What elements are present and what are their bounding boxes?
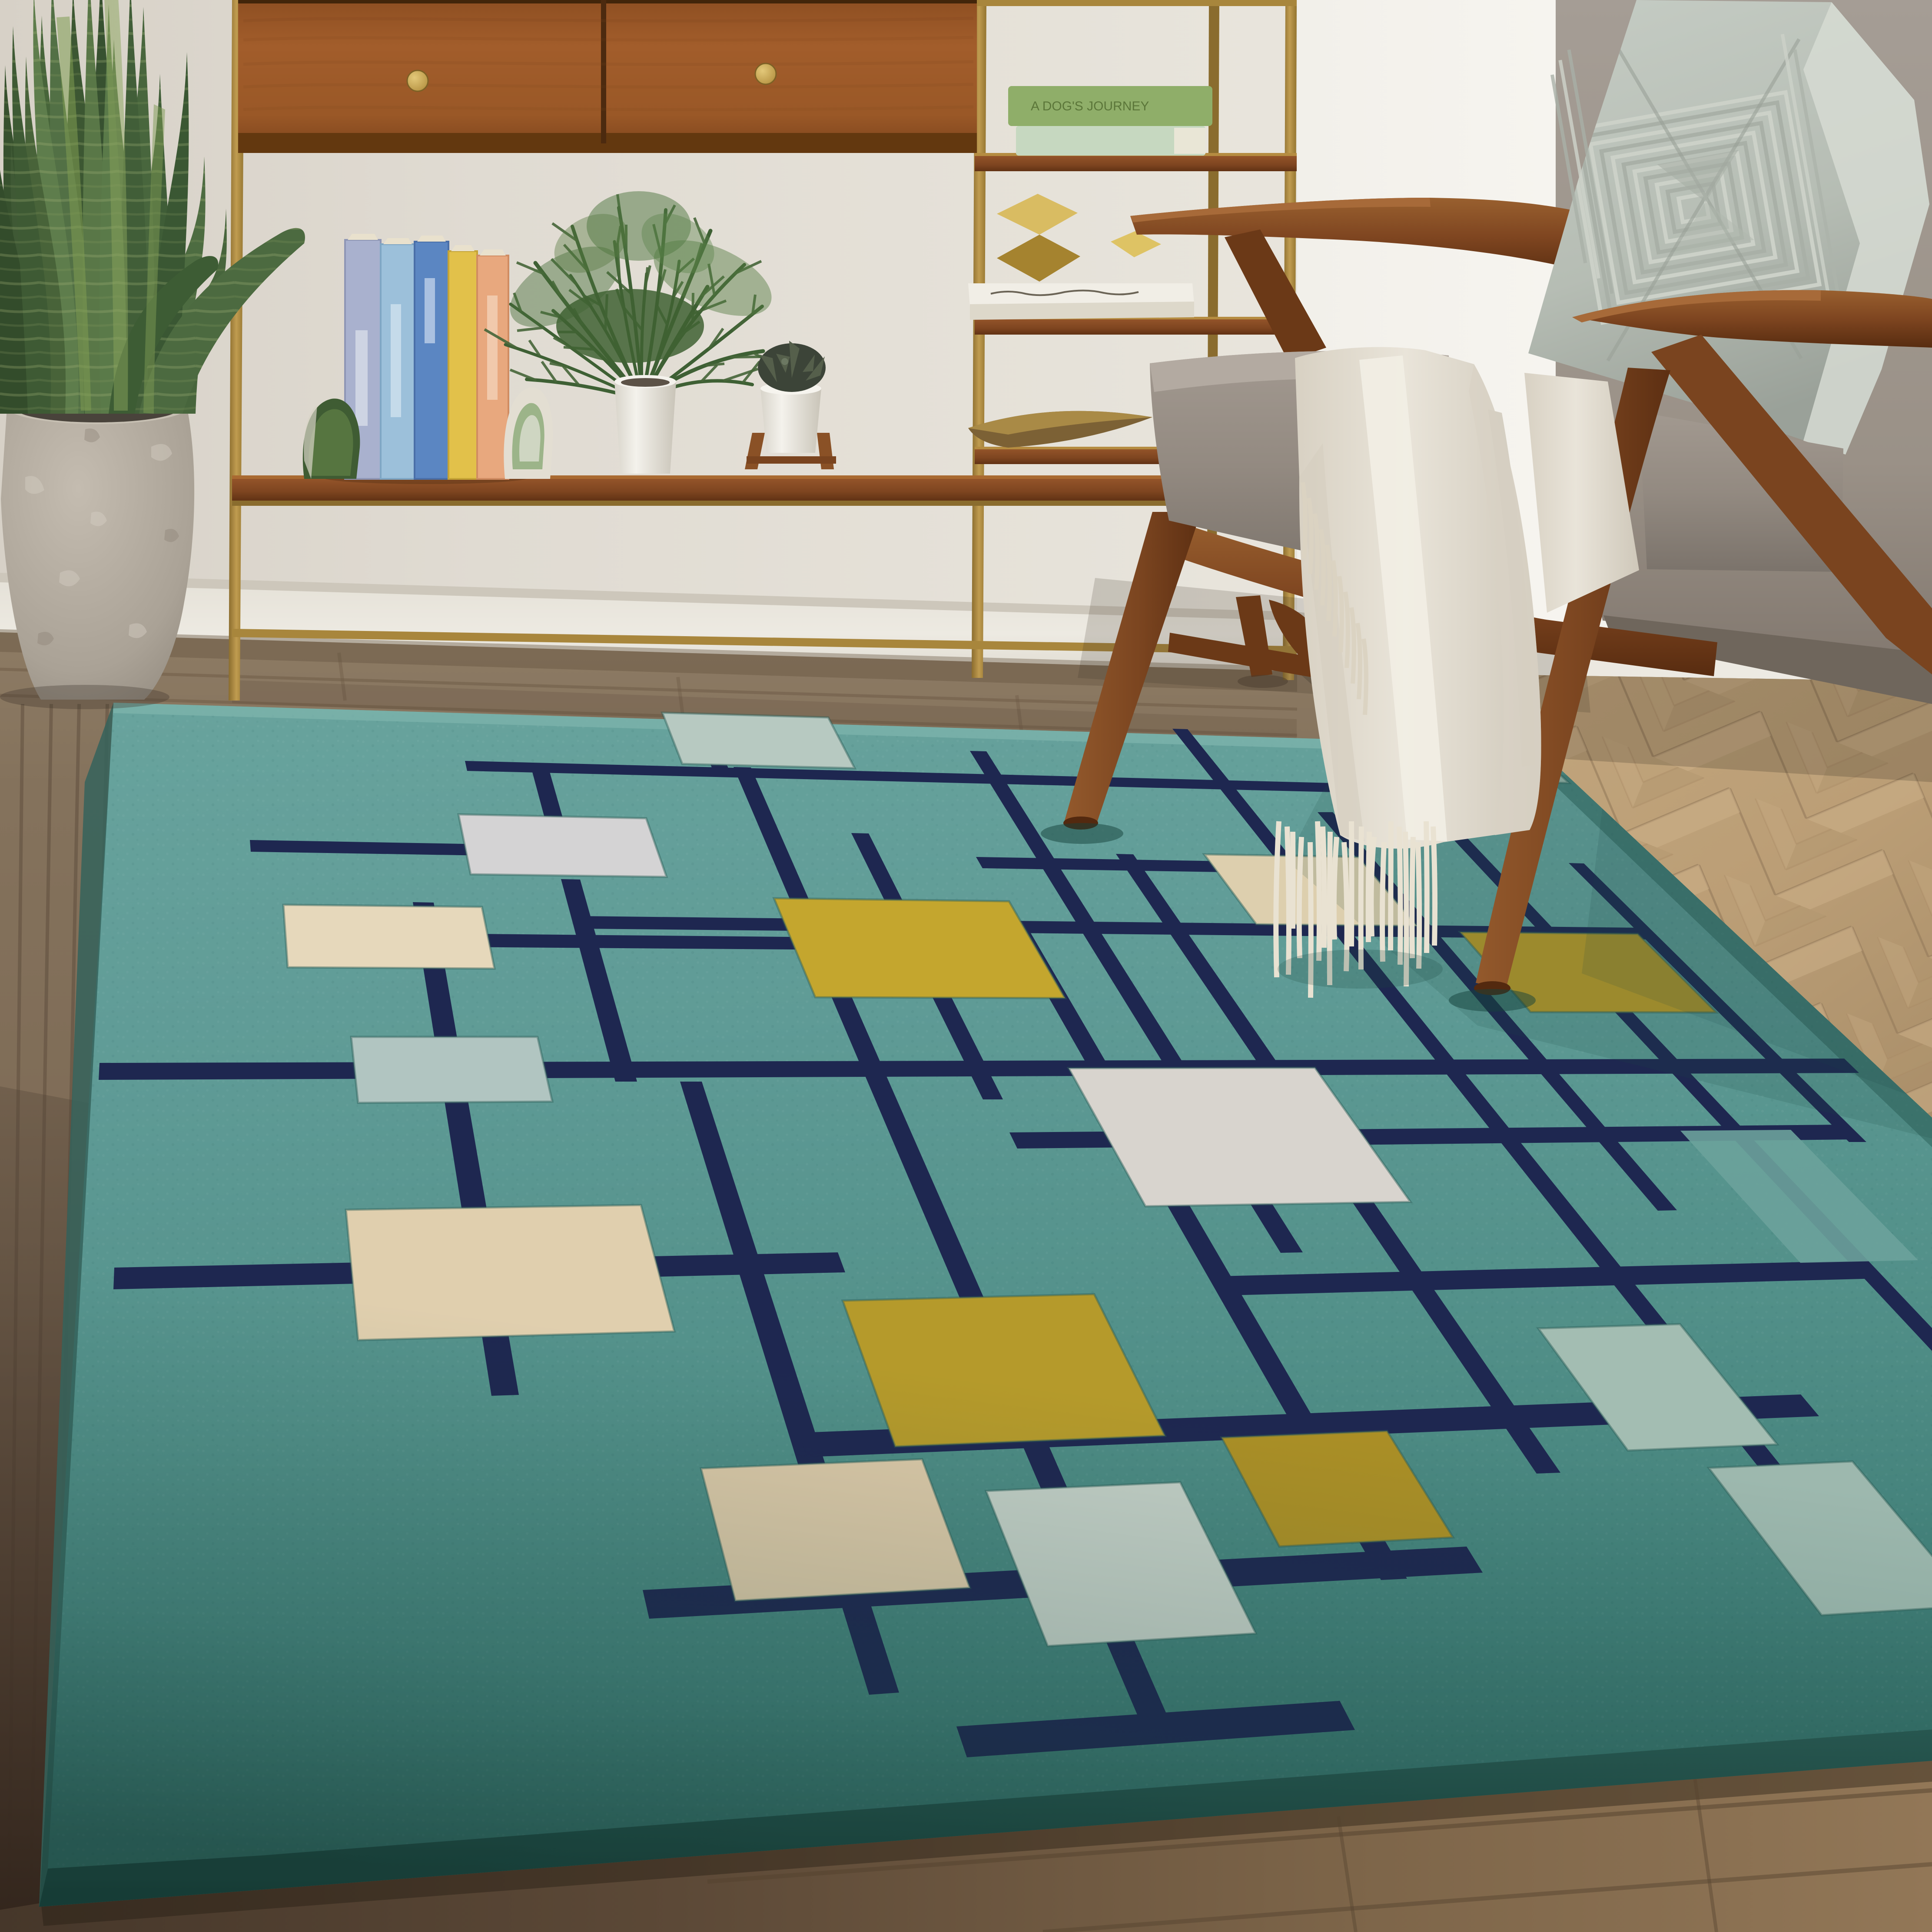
svg-text:A DOG'S JOURNEY: A DOG'S JOURNEY (1031, 99, 1149, 113)
